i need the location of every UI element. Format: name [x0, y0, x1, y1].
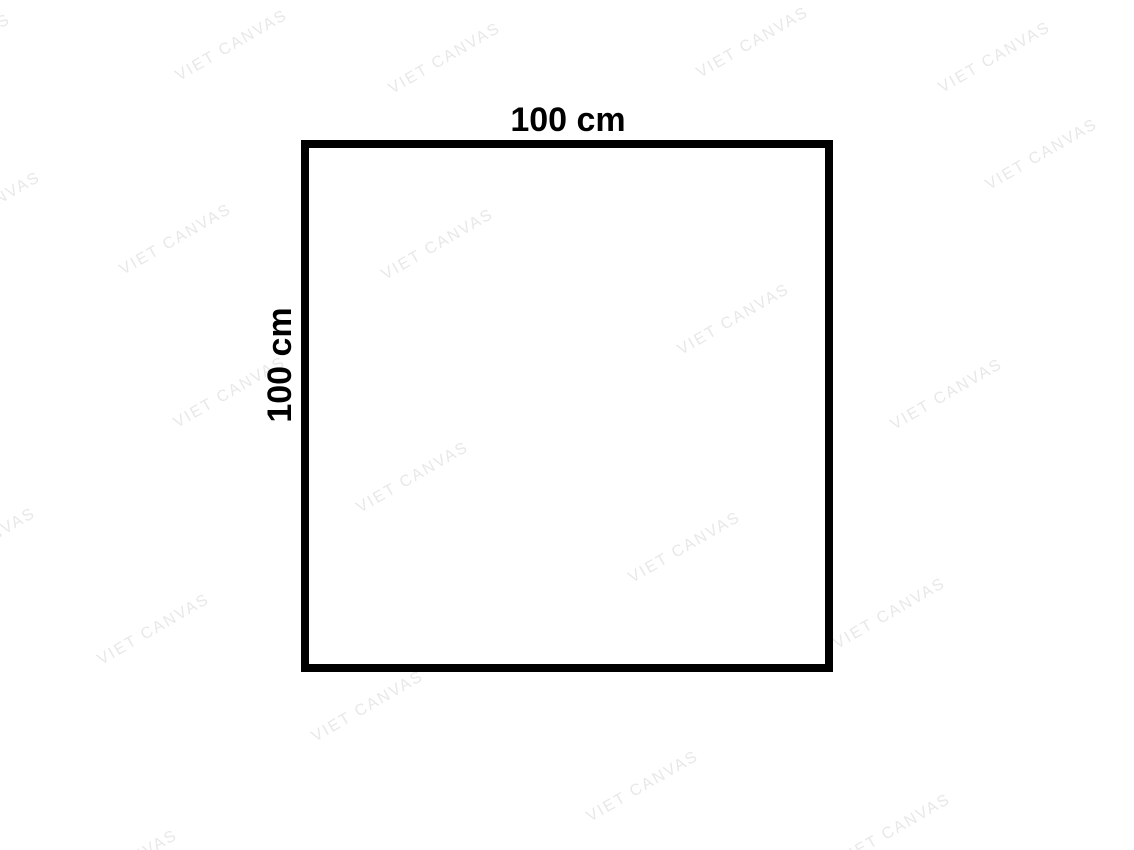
- diagram-canvas: VIET CANVASVIET CANVASVIET CANVASVIET CA…: [0, 0, 1134, 850]
- watermark-text: VIET CANVAS: [386, 20, 504, 99]
- watermark-text: VIET CANVAS: [0, 505, 39, 584]
- watermark-text: VIET CANVAS: [831, 575, 949, 654]
- watermark-text: VIET CANVAS: [836, 791, 954, 850]
- watermark-text: VIET CANVAS: [936, 19, 1054, 98]
- watermark-text: VIET CANVAS: [888, 356, 1006, 435]
- watermark-text: VIET CANVAS: [0, 169, 44, 248]
- watermark-text: VIET CANVAS: [309, 668, 427, 747]
- watermark-text: VIET CANVAS: [584, 748, 702, 827]
- watermark-text: VIET CANVAS: [95, 591, 213, 670]
- watermark-text: VIET CANVAS: [173, 7, 291, 86]
- watermark-text: VIET CANVAS: [0, 11, 14, 90]
- watermark-text: VIET CANVAS: [694, 4, 812, 83]
- watermark-text: VIET CANVAS: [983, 116, 1101, 195]
- height-dimension-label: 100 cm: [263, 307, 297, 422]
- dimension-square: [301, 140, 833, 672]
- watermark-text: VIET CANVAS: [117, 201, 235, 280]
- watermark-text: VIET CANVAS: [63, 827, 181, 850]
- width-dimension-label: 100 cm: [510, 103, 625, 137]
